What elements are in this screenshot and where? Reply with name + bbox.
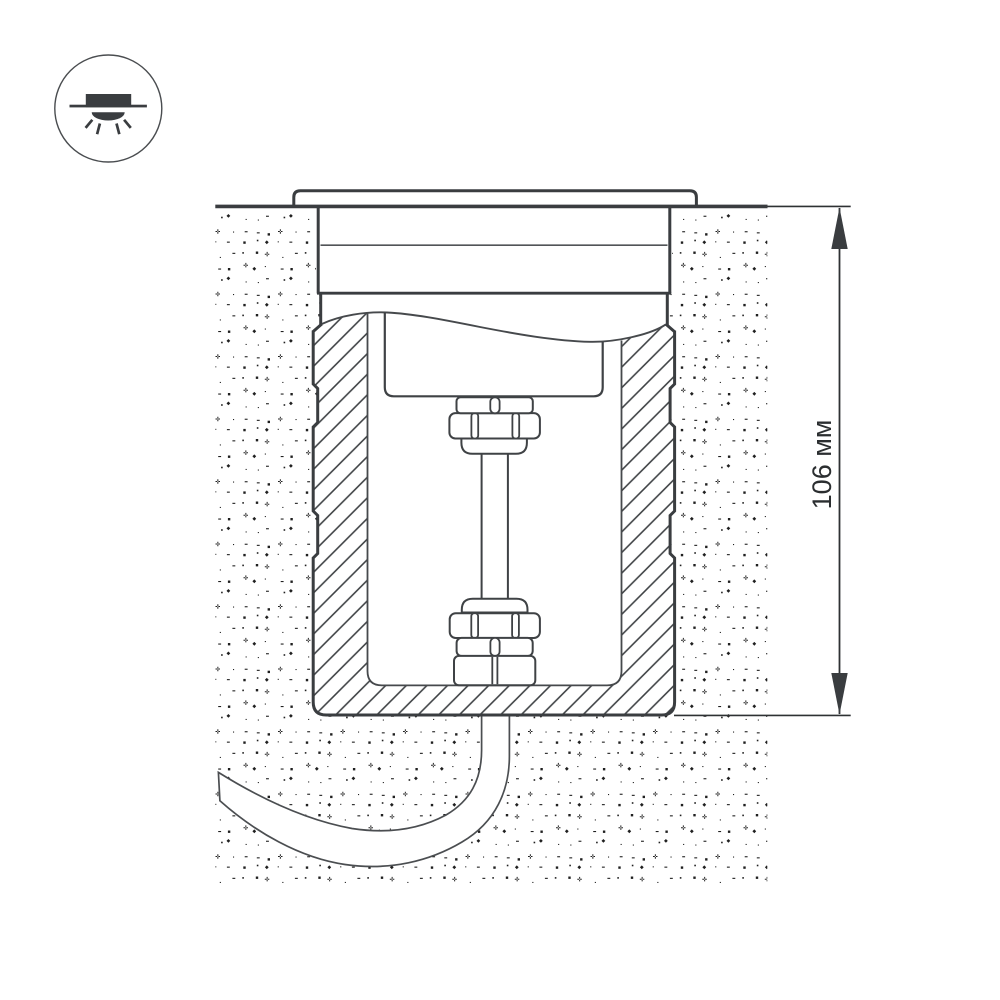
svg-text:106 мм: 106 мм — [807, 420, 837, 510]
